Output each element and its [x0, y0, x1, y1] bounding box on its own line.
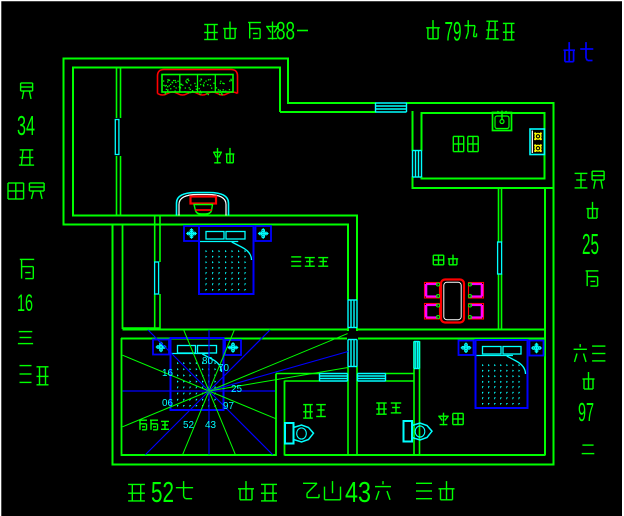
svg-text:34: 34: [17, 110, 35, 141]
svg-text:97: 97: [223, 400, 234, 412]
svg-text:88: 88: [276, 18, 295, 46]
svg-text:43: 43: [205, 419, 216, 431]
svg-text:52: 52: [151, 477, 174, 509]
svg-text:25: 25: [582, 229, 599, 261]
svg-text:80: 80: [202, 355, 213, 367]
svg-text:16: 16: [162, 367, 173, 379]
svg-text:25: 25: [231, 383, 242, 395]
svg-text:16: 16: [17, 290, 33, 317]
svg-text:52: 52: [183, 419, 194, 431]
svg-text:06: 06: [162, 397, 173, 409]
svg-text:79: 79: [445, 17, 462, 47]
svg-text:70: 70: [218, 362, 229, 374]
svg-text:43: 43: [345, 477, 371, 509]
svg-text:97: 97: [578, 397, 594, 427]
